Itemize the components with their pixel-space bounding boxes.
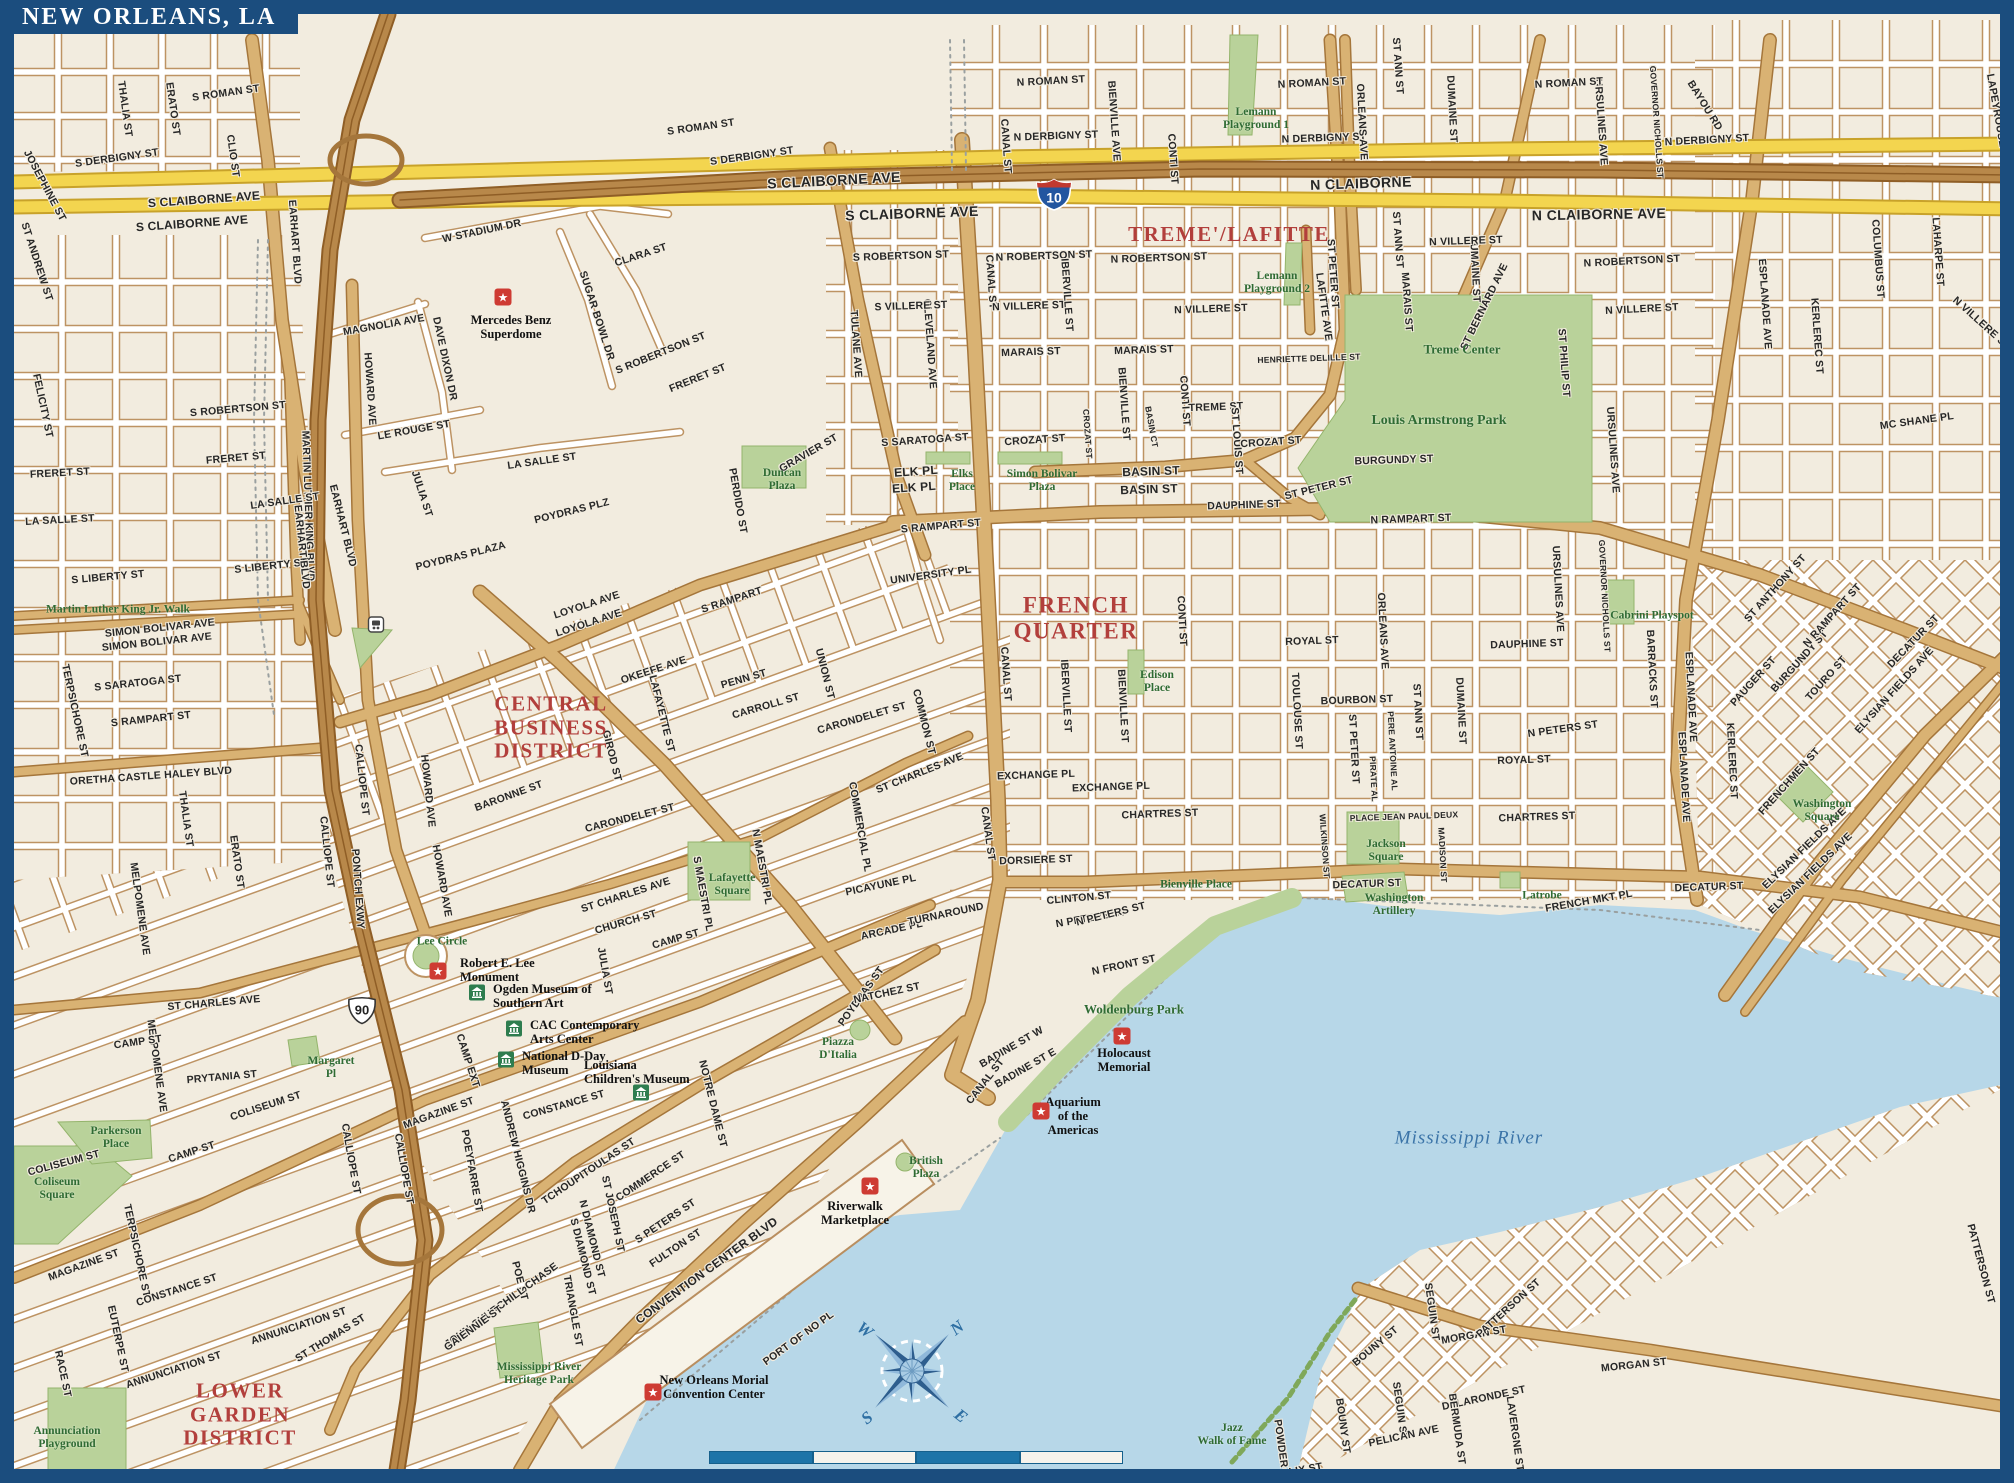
street-label: MARAIS ST (1398, 272, 1414, 332)
street-label: KERLEREC ST (1807, 298, 1824, 375)
street-label: DAUPHINE ST (1207, 499, 1281, 513)
street-label: URSULINES AVE (1591, 78, 1609, 165)
museum-icon (498, 1052, 514, 1073)
interstate-10-shield: 10 (1034, 178, 1074, 217)
street-label: SEGUIN ST (1421, 1282, 1441, 1341)
street-label: POEYFARRE ST (458, 1129, 484, 1213)
street-label: CLIO ST (223, 134, 241, 178)
street-label: S RAMPART (700, 586, 764, 617)
park-label: Edison Place (1140, 669, 1174, 695)
street-label: PORT OF NO PL (761, 1309, 836, 1368)
street-label: S CLAIBORNE AVE (135, 213, 248, 234)
street-label: CHARTRES ST (1498, 811, 1575, 825)
park-label: Simon Bolivar Plaza (1007, 468, 1078, 494)
street-label: N ROMAN ST (1016, 74, 1085, 89)
street-label: CONTI ST (1176, 375, 1191, 426)
park-label: Coliseum Square (34, 1176, 80, 1202)
street-label: PERDIDO ST (725, 467, 748, 534)
map-labels-layer: S ROMAN STTHALIA STERATO STS DERBIGNY ST… (14, 14, 2000, 1469)
street-label: ST CHARLES AVE (167, 994, 261, 1014)
street-label: S ROBERTSON ST (614, 331, 708, 378)
street-label: WILKINSON ST (1317, 814, 1331, 879)
street-label: S RAMPART ST (110, 710, 191, 730)
street-label: LE ROUGE ST (377, 419, 451, 443)
street-label: N CLAIBORNE AVE (1532, 206, 1667, 224)
street-label: MAGAZINE ST (402, 1096, 476, 1133)
park-label: Martin Luther King Jr. Walk (46, 604, 190, 617)
park-label: Washington Square (1793, 798, 1852, 824)
street-label: COLUMBUS ST (1868, 219, 1885, 299)
scale-bar-label: 0.25 (901, 1468, 930, 1469)
street-label: LAHARPE ST (1929, 217, 1946, 287)
museum-label: Ogden Museum of Southern Art (493, 982, 592, 1010)
street-label: LA SALLE ST (507, 451, 577, 472)
street-label: DORSIERE ST (999, 854, 1073, 868)
park-label: British Plaza (909, 1155, 943, 1181)
scale-bar-segment (813, 1451, 917, 1464)
district-label: CENTRAL BUSINESS DISTRICT (494, 693, 608, 764)
street-label: TOULOUSE ST (1288, 672, 1304, 749)
street-label: GOVERNOR NICHOLLS ST (1596, 540, 1611, 653)
page-title: NEW ORLEANS, LA (22, 4, 276, 31)
street-label: TOURO ST (1804, 654, 1850, 703)
street-label: ERATO ST (226, 835, 245, 890)
street-label: PIRATE AL (1367, 756, 1379, 802)
street-label: ST ANN ST (1389, 37, 1405, 95)
street-label: RACE ST (51, 1350, 72, 1399)
street-label: BASIN ST (1120, 482, 1178, 497)
museum-label: CAC Contemporary Arts Center (530, 1018, 639, 1046)
street-label: CLINTON ST (1046, 890, 1112, 907)
street-label: N VILLERE ST (1429, 235, 1503, 249)
street-label: PATTERSON ST (1475, 1277, 1544, 1341)
street-label: ST BERNARD AVE (1459, 262, 1511, 353)
svg-text:10: 10 (1046, 190, 1062, 206)
street-label: FRERET ST (206, 451, 267, 468)
street-label: W STADIUM DR (441, 218, 522, 246)
street-label: LA SALLE ST (25, 513, 95, 528)
street-label: FELICITY ST (29, 373, 54, 439)
us-route-90-shield: 90 (344, 994, 380, 1031)
street-label: PENN ST (720, 668, 768, 692)
street-label: NOTRE DAME ST (695, 1059, 728, 1149)
street-label: COLISEUM ST (229, 1090, 303, 1124)
street-label: MAGAZINE ST (47, 1248, 121, 1285)
street-label: BIENVILLE ST (1114, 669, 1130, 743)
street-label: N ROBERTSON ST (1583, 254, 1680, 271)
park-label: Lemann Playground 2 (1244, 270, 1310, 296)
street-label: TURNAROUND (907, 901, 985, 929)
park-label: Woldenburg Park (1084, 1003, 1184, 1018)
street-label: CHARTRES ST (1121, 808, 1198, 822)
street-label: BARONNE ST (473, 779, 544, 814)
district-label: FRENCH QUARTER (1014, 592, 1139, 644)
street-label: N RAMPART ST (1370, 513, 1451, 528)
street-label: BASIN ST (1122, 464, 1180, 479)
park-label: Annunciation Playground (33, 1425, 100, 1451)
street-label: CAMP ST (167, 1140, 217, 1166)
street-label: PLACE JEAN PAUL DEUX (1350, 810, 1459, 823)
street-label: S CLAIBORNE AVE (845, 204, 979, 224)
park-label: Jackson Square (1366, 838, 1406, 864)
scale-bar-label: 0.125 (794, 1468, 832, 1469)
street-label: S CLAIBORNE AVE (147, 189, 260, 210)
street-label: TRIANGLE ST (560, 1274, 584, 1347)
street-label: ST ANN ST (1389, 211, 1405, 269)
park-label: Duncan Plaza (763, 467, 801, 493)
street-label: HOWARD AVE (417, 754, 436, 828)
park-label: Latrobe (1522, 890, 1561, 903)
park-label: Washington Artillery (1365, 892, 1424, 918)
street-label: MC SHANE PL (1879, 411, 1954, 433)
street-label: N ROBERTSON ST (995, 249, 1092, 264)
street-label: MARAIS ST (1114, 344, 1174, 358)
street-label: CAMP EXT (453, 1033, 481, 1090)
street-label: MARAIS ST (1001, 346, 1061, 360)
street-label: ST JOSEPH ST (598, 1175, 626, 1253)
street-label: MADISON ST (1436, 827, 1448, 883)
street-label: LAFAYETTE ST (646, 674, 677, 754)
street-label: S LIBERTY ST (71, 569, 145, 587)
street-label: CONTI ST (1164, 133, 1179, 184)
street-label: S ROBERTSON ST (190, 400, 287, 420)
star-landmark-icon: ★ (1033, 1103, 1050, 1120)
poi-label: Aquarium of the Americas (1045, 1095, 1101, 1137)
street-label: BIENVILLE ST (1115, 367, 1132, 441)
street-label: N FRONT ST (1091, 953, 1157, 978)
park-label: Cabrini Playspot (1610, 610, 1693, 623)
museum-icon (469, 985, 485, 1006)
scale-bar-segment (1020, 1451, 1124, 1464)
street-label: N RAMPART ST (1802, 582, 1865, 650)
scale-bar: 00.1250.250.3750.5 MILE (709, 1451, 1123, 1464)
street-label: POYDRAS PLZ (533, 497, 610, 527)
scale-bar-segment (916, 1451, 1020, 1464)
scale-bar-segment (709, 1451, 813, 1464)
street-label: N VILLERE ST (992, 300, 1066, 314)
street-label: ESPLANADE AVE (1675, 731, 1691, 822)
street-label: THALIA ST (114, 80, 133, 137)
street-label: ST ANTHONY ST (1743, 553, 1810, 625)
street-label: DAUPHINE ST (1490, 638, 1564, 652)
street-label: ST CHARLES AVE (875, 751, 966, 797)
street-label: UNIVERSITY PL (890, 564, 973, 587)
street-label: HOWARD AVE (361, 352, 378, 426)
street-label: GOVERNOR NICHOLLS ST (1647, 65, 1664, 178)
street-label: N CLAIBORNE (1310, 174, 1412, 193)
street-label: ST PETER ST (1345, 714, 1360, 784)
street-label: CANAL ST (997, 118, 1013, 173)
street-label: HENRIETTE DELILLE ST (1257, 352, 1360, 365)
park-label: Margaret Pl (307, 1055, 354, 1081)
poi-label: Holocaust Memorial (1097, 1046, 1150, 1074)
street-label: PERE ANTOINE AL (1385, 711, 1399, 791)
star-landmark-icon: ★ (645, 1384, 662, 1401)
scale-bar-label: 0.5 MILE (1107, 1468, 1168, 1469)
poi-label: Mercedes Benz Superdome (471, 313, 552, 341)
svg-text:90: 90 (355, 1003, 369, 1018)
street-label: S ROMAN ST (192, 83, 261, 104)
street-label: EUTERPE ST (104, 1305, 130, 1374)
street-label: CAMP ST (651, 928, 701, 953)
street-label: MORGAN ST (1440, 1324, 1507, 1347)
scale-bar-label: 0 (705, 1468, 713, 1469)
street-label: CALLIOPE ST (316, 816, 335, 888)
star-landmark-icon: ★ (495, 289, 512, 306)
street-label: ROYAL ST (1285, 635, 1339, 649)
street-label: CALLIOPE ST (351, 744, 370, 816)
park-label: Jazz Walk of Fame (1198, 1422, 1267, 1448)
district-label: LOWER GARDEN DISTRICT (183, 1380, 297, 1451)
map-page: NESW S ROMAN STTHALIA STERATO STS DERBIG… (0, 0, 2014, 1483)
street-label: BASIN CT (1143, 406, 1160, 449)
street-label: N VILLERE ST (1605, 302, 1679, 318)
street-label: BOURBON ST (1321, 694, 1394, 708)
street-label: CARONDELET ST (816, 701, 908, 738)
map-title-bar: NEW ORLEANS, LA (0, 0, 298, 34)
street-label: ESPLANADE AVE (1755, 258, 1773, 349)
museum-icon (506, 1021, 522, 1042)
star-landmark-icon: ★ (862, 1178, 879, 1195)
street-label: N VILLERE ST (1950, 295, 2000, 353)
street-label: BAYOU RD (1684, 79, 1724, 133)
park-label: Bienville Place (1160, 879, 1232, 892)
street-label: IBERVILLE ST (1058, 258, 1075, 332)
street-label: ST ANN ST (1410, 683, 1425, 740)
street-label: ELK PL (894, 464, 939, 480)
street-label: POYDRAS PLAZA (415, 540, 508, 574)
street-label: FRERET ST (30, 467, 91, 482)
street-label: S SARATOGA ST (94, 674, 182, 695)
street-label: BOUNY ST (1351, 1325, 1401, 1370)
street-label: LAVERGNE ST (1503, 1395, 1525, 1469)
street-label: ORLEANS AVE (1374, 592, 1390, 669)
street-label: N DERBIGNY ST (1664, 133, 1749, 149)
street-label: COLISEUM ST (27, 1149, 101, 1179)
museum-icon (633, 1085, 649, 1106)
street-label: CARONDELET ST (584, 802, 676, 836)
street-label: N PETERS ST (1527, 719, 1599, 741)
street-label: HOWARD AVE (429, 844, 453, 918)
street-label: N PETERS ST (1075, 901, 1147, 930)
poi-label: New Orleans Morial Convention Center (659, 1373, 768, 1401)
park-label: Elks Place (949, 468, 975, 494)
street-label: COMMERCIAL PL (845, 781, 872, 873)
street-label: EXCHANGE PL (997, 769, 1075, 783)
street-label: CROZAT ST (1240, 435, 1302, 451)
park-label: Piazza D'Italia (819, 1036, 857, 1062)
map-area: NESW S ROMAN STTHALIA STERATO STS DERBIG… (14, 14, 2000, 1469)
street-label: N DERBIGNY ST (1281, 132, 1366, 147)
street-label: PATTERSON ST (1964, 1223, 1997, 1305)
street-label: S ROBERTSON ST (853, 249, 950, 264)
district-label: TREME'/LAFITTE (1128, 223, 1330, 247)
street-label: S DERBIGNY ST (710, 145, 795, 168)
street-label: ROYAL ST (1497, 754, 1551, 768)
street-label: MAGNOLIA AVE (342, 313, 425, 339)
street-label: CARROLL ST (731, 692, 801, 722)
street-label: ORETHA CASTLE HALEY BLVD (69, 765, 232, 788)
street-label: BURGUNDY ST (1354, 454, 1433, 469)
street-label: DECATUR ST (1674, 881, 1743, 895)
street-label: CONTI ST (1174, 595, 1188, 646)
street-label: PICAYUNE PL (845, 873, 918, 899)
street-label: IBERVILLE ST (1057, 659, 1073, 733)
street-label: GAIENNIE ST (443, 1304, 506, 1354)
street-label: THALIA ST (175, 790, 194, 847)
star-landmark-icon: ★ (430, 963, 447, 980)
street-label: ORLEANS AVE (1353, 83, 1369, 160)
street-label: COMMERCE ST (614, 1149, 688, 1204)
street-label: BOUNY ST (1332, 1398, 1351, 1455)
street-label: JULIA ST (594, 946, 614, 995)
street-label: POWDER ST (1271, 1419, 1292, 1469)
street-label: MELPOMENE AVE (127, 862, 152, 956)
street-label: S VILLERE ST (874, 300, 947, 314)
street-label: S RAMPART ST (900, 518, 981, 537)
poi-label: Riverwalk Marketplace (821, 1199, 889, 1227)
street-label: URSULINES AVE (1549, 545, 1565, 632)
street-label: COMMON ST (909, 688, 937, 756)
railroad-icon (368, 616, 385, 638)
street-label: ST PHILIP ST (1555, 328, 1572, 397)
street-label: EARHART BLVD (285, 199, 303, 284)
park-label: Lemann Playground 1 (1223, 106, 1289, 132)
street-label: ST ANDREW ST (18, 221, 54, 303)
street-label: DAVE DIXON DR (429, 316, 458, 402)
street-label: BIENVILLE AVE (1104, 80, 1121, 161)
street-label: S CLAIBORNE AVE (767, 170, 901, 193)
street-label: N VILLERE ST (1174, 303, 1248, 317)
street-label: DECATUR ST (1332, 878, 1401, 892)
scale-bar-label: 0.375 (1001, 1468, 1039, 1469)
street-label: EARHART BLVD (326, 484, 358, 569)
street-label: LAPEYROUSE ST (1983, 73, 2000, 165)
museum-label: Louisiana Children's Museum (584, 1058, 690, 1086)
street-label: CALLIOPE ST (338, 1123, 362, 1196)
street-label: EXCHANGE PL (1072, 781, 1150, 795)
poi-label: Robert E. Lee Monument (460, 956, 535, 984)
park-label: Lee Circle (417, 936, 468, 949)
park-label: Louis Armstrong Park (1371, 413, 1506, 429)
park-label: Treme Center (1423, 343, 1500, 358)
street-label: N ROMAN ST (1277, 76, 1346, 91)
street-label: ST CHARLES AVE (580, 876, 672, 916)
street-label: S SARATOGA ST (881, 432, 969, 450)
street-label: CHURCH ST (594, 909, 658, 938)
street-label: TERPSICHORE ST (58, 663, 89, 758)
street-label: CONSTANCE ST (522, 1089, 606, 1124)
street-label: PRYTANIA ST (186, 1069, 257, 1087)
street-label: CANAL ST (977, 806, 996, 862)
street-label: S ROMAN ST (667, 117, 736, 138)
street-label: JULIA ST (408, 469, 434, 518)
street-label: ESPLANADE AVE (1682, 651, 1698, 742)
street-label: URSULINES AVE (1603, 406, 1621, 493)
street-label: FRERET ST (668, 362, 728, 395)
street-label: ERATO ST (162, 82, 181, 137)
street-label: CALLIOPE ST (391, 1133, 415, 1206)
water-label: Mississippi River (1395, 1127, 1543, 1148)
park-label: Parkerson Place (90, 1125, 141, 1151)
street-label: TERPSICHORE ST (120, 1203, 151, 1298)
park-label: Mississippi River Heritage Park (497, 1361, 582, 1387)
street-label: CROZAT ST (1081, 409, 1094, 459)
street-label: UNION ST (812, 647, 836, 700)
street-label: CLARA ST (613, 242, 668, 270)
park-label: Lafayette Square (709, 872, 756, 898)
street-label: N ROBERTSON ST (1110, 251, 1207, 266)
street-label: S DERBIGNY ST (75, 147, 160, 170)
street-label: CANAL ST (997, 646, 1013, 701)
street-label: ELK PL (892, 480, 937, 496)
street-label: CROZAT ST (1004, 433, 1066, 449)
street-label: DUMAINE ST (1443, 75, 1458, 143)
street-label: N DERBIGNY ST (1013, 130, 1098, 145)
street-label: ST PETER ST (1284, 475, 1355, 503)
street-label: JOSEPHINE ST (20, 148, 67, 223)
street-label: MORGAN ST (1601, 1357, 1668, 1376)
street-label: PONTCH EXWY (348, 849, 365, 930)
street-label: BARRACKS ST (1643, 629, 1659, 708)
street-label: KERLEREC ST (1723, 723, 1739, 800)
star-landmark-icon: ★ (1114, 1028, 1131, 1045)
street-label: SUGAR BOWL DR (576, 270, 616, 362)
street-label: DUMAINE ST (1452, 677, 1467, 745)
street-label: TULANE AVE (847, 310, 863, 379)
